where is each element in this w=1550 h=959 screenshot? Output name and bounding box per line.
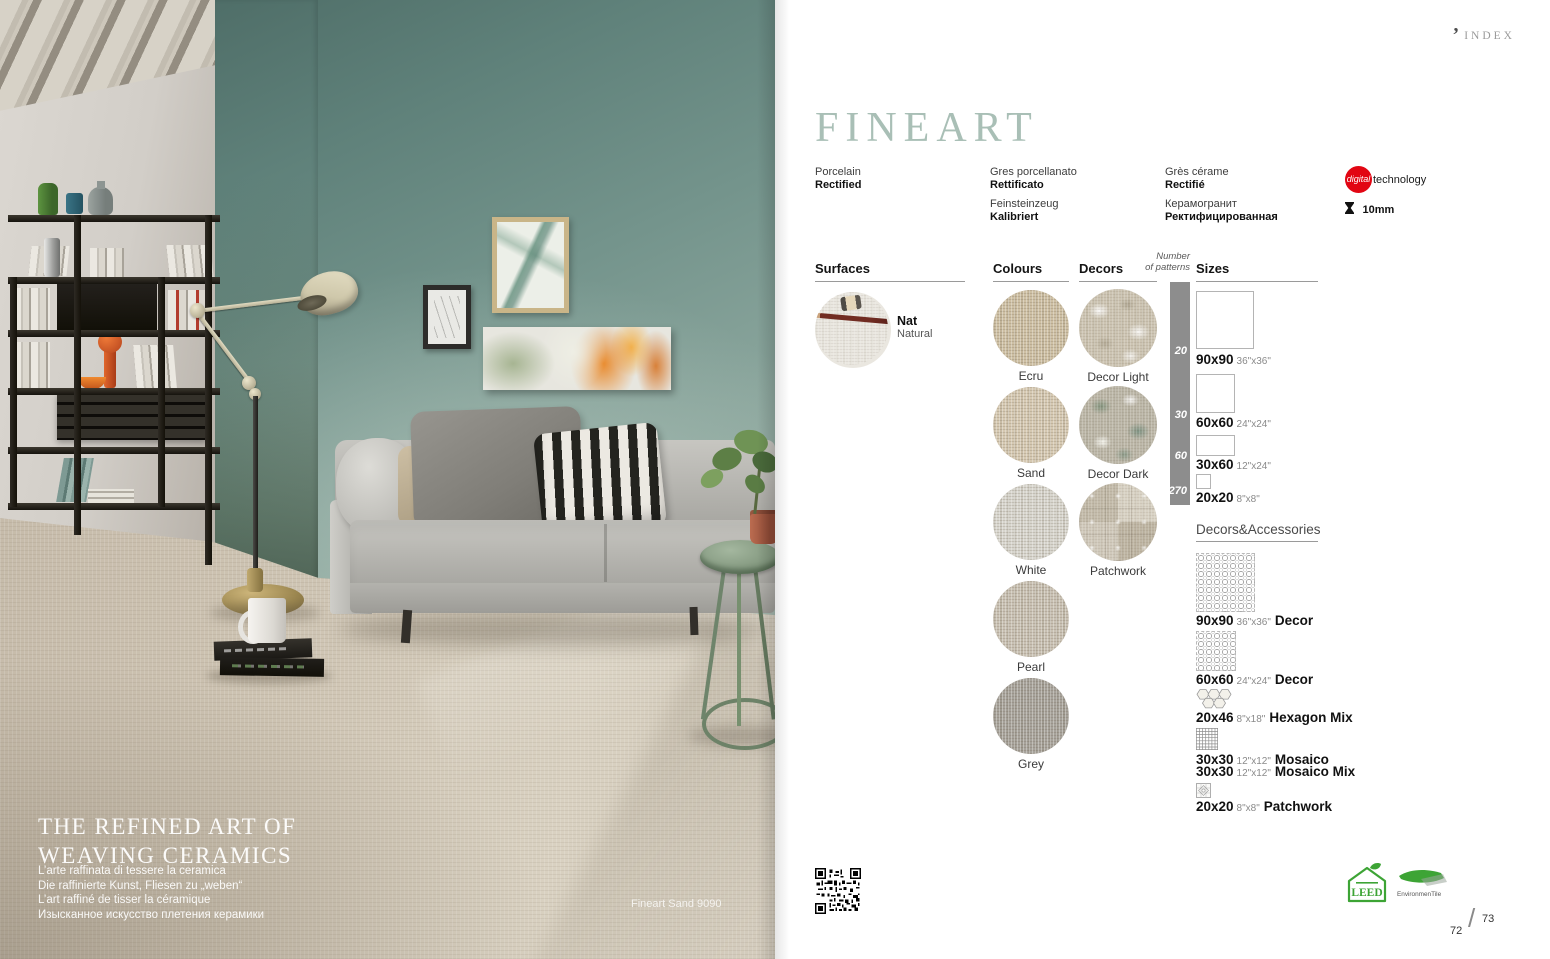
- decors-underline: [1079, 281, 1157, 282]
- weave-texture: [1079, 386, 1157, 464]
- books: [133, 345, 177, 388]
- qr-code: [815, 868, 861, 914]
- patterns-header-line1: Number: [1138, 252, 1190, 263]
- swatch-ecru[interactable]: [993, 290, 1069, 366]
- info-fr-finish: Rectifié: [1165, 179, 1278, 192]
- subtitle-de: Die raffinierte Kunst, Fliesen zu „weben…: [38, 879, 264, 894]
- hexagon-mix-icon: [1196, 689, 1232, 709]
- swatch-white[interactable]: [993, 484, 1069, 560]
- swatch-label: Pearl: [993, 657, 1069, 678]
- pattern-count: 60: [1157, 450, 1187, 462]
- index-comma-icon: ’: [1453, 24, 1460, 46]
- grey-vase-neck: [97, 181, 105, 189]
- size-label: 30x6012"x24": [1196, 457, 1271, 472]
- thread-spool: [840, 295, 862, 312]
- swatch-grey[interactable]: [993, 678, 1069, 754]
- collection-title: FINEART: [815, 104, 1039, 152]
- thickness-icon: [1345, 202, 1354, 214]
- sofa-leg: [690, 607, 699, 635]
- closed-cabinet: [57, 284, 157, 330]
- swatch-label: Decor Light: [1079, 367, 1157, 386]
- accessory-label: 20x208"x8"Patchwork: [1196, 799, 1332, 814]
- photo-headline: THE REFINED ART OF WEAVING CERAMICS: [38, 812, 296, 870]
- painting-canvas: [483, 327, 671, 390]
- decors-column: Decor Light Decor Dark Patchwork: [1079, 289, 1157, 580]
- books: [14, 342, 50, 388]
- shelf-board: [8, 330, 220, 337]
- shelf-board: [8, 503, 220, 510]
- size-square-20x20: [1196, 474, 1211, 489]
- size-label: 90x9036"x36": [1196, 352, 1271, 367]
- weave-texture: [993, 387, 1069, 463]
- weave-texture: [993, 581, 1069, 657]
- digital-badge-suffix: technology: [1373, 174, 1426, 186]
- weave-texture: [993, 484, 1069, 560]
- surfaces-header: Surfaces: [815, 261, 870, 276]
- patterns-header-line2: of patterns: [1138, 263, 1190, 274]
- leed-text: LEED: [1351, 887, 1382, 899]
- page-number-right: 73: [1482, 913, 1494, 925]
- index-link[interactable]: ’INDEX: [1453, 24, 1515, 47]
- headline-line1: THE REFINED ART OF: [38, 812, 296, 841]
- page-number-slash: /: [1468, 903, 1475, 934]
- shelf-rail: [10, 277, 17, 507]
- photo-caption: Fineart Sand 9090: [631, 898, 722, 910]
- photo-gutter-shade: [757, 0, 775, 959]
- swatch-decor-light[interactable]: [1079, 289, 1157, 367]
- swatch-label: Sand: [993, 463, 1069, 484]
- mosaico-grid-icon: [1196, 728, 1218, 750]
- room-photo: THE REFINED ART OF WEAVING CERAMICS L’ar…: [0, 0, 775, 959]
- floor-book: [220, 657, 324, 677]
- subtitle-it: L’arte raffinata di tessere la ceramica: [38, 864, 264, 879]
- size-rect-30x60: [1196, 435, 1235, 456]
- shelf-board: [8, 277, 220, 284]
- page-number-left: 72: [1450, 925, 1462, 937]
- digital-technology-badge: digitaltechnology: [1345, 166, 1426, 193]
- info-it-de: Gres porcellanato Rettificato Feinsteinz…: [990, 166, 1077, 230]
- shelf-board: [8, 388, 220, 395]
- sizes-header: Sizes: [1196, 261, 1229, 276]
- environmentile-logo: EnvironmenTile: [1395, 866, 1451, 902]
- metal-vase: [44, 238, 60, 277]
- size-label: 60x6024"x24": [1196, 415, 1271, 430]
- pattern-count: 270: [1157, 485, 1187, 497]
- info-de-finish: Kalibriert: [990, 211, 1077, 224]
- decors-header: Decors: [1079, 261, 1123, 276]
- info-it-material: Gres porcellanato: [990, 166, 1077, 179]
- shelf-board: [8, 215, 220, 222]
- info-fr-material: Grès cérame: [1165, 166, 1278, 179]
- accessories-underline: [1196, 541, 1318, 542]
- books: [14, 288, 50, 330]
- surface-subname: Natural: [897, 328, 932, 340]
- shelf-rail: [158, 277, 165, 507]
- index-label: INDEX: [1464, 30, 1515, 42]
- grey-vase: [88, 187, 113, 215]
- books: [90, 248, 124, 277]
- colours-underline: [993, 281, 1069, 282]
- book-spine-text: [232, 664, 304, 668]
- shelf-leg: [74, 510, 81, 535]
- painting-small-art: [434, 296, 460, 338]
- surfaces-underline: [815, 281, 965, 282]
- info-ru-finish: Ректифицированная: [1165, 211, 1278, 224]
- sofa-front: [350, 583, 775, 613]
- shelf-rail: [74, 215, 81, 510]
- sofa-seat-crease: [604, 524, 607, 582]
- weave-texture: [993, 678, 1069, 754]
- page-numbers: 72 / 73: [1442, 907, 1512, 945]
- green-vase: [38, 183, 58, 215]
- info-en-finish: Rectified: [815, 179, 861, 192]
- patterns-count-bar: 20 30 60 270: [1170, 282, 1190, 505]
- thickness-value: 10mm: [1362, 204, 1394, 216]
- lamp-pole: [253, 396, 258, 592]
- digital-badge-icon: digital: [1345, 166, 1372, 193]
- info-it-finish: Rettificato: [990, 179, 1077, 192]
- accessory-label: 30x3012"x12"Mosaico Mix: [1196, 764, 1355, 779]
- tech-badges: digitaltechnology 10mm: [1345, 166, 1426, 219]
- swatch-label: Ecru: [993, 366, 1069, 387]
- leed-logo: LEED: [1342, 862, 1392, 906]
- swatch-patchwork[interactable]: [1079, 483, 1157, 561]
- surface-name: Nat: [897, 314, 917, 328]
- accessory-label: 90x9036"x36"Decor: [1196, 613, 1313, 628]
- shelf-board: [8, 447, 220, 454]
- info-en: Porcelain Rectified: [815, 166, 861, 192]
- swatch-label: Patchwork: [1079, 561, 1157, 580]
- info-en-material: Porcelain: [815, 166, 861, 179]
- size-square-60x60: [1196, 374, 1235, 413]
- surface-nat-overlay: [815, 292, 888, 365]
- surface-nat: Nat Natural: [815, 292, 1005, 368]
- colours-column: Ecru Sand White Pearl Grey: [993, 290, 1069, 775]
- book-spine-text: [224, 647, 290, 652]
- photo-subtitles: L’arte raffinata di tessere la ceramica …: [38, 864, 264, 922]
- patchwork-icon: [1196, 783, 1211, 798]
- swatch-label: Decor Dark: [1079, 464, 1157, 483]
- patterns-header: Number of patterns: [1138, 252, 1190, 273]
- mug: [248, 598, 286, 643]
- weave-texture: [1079, 289, 1157, 367]
- pattern-count: 20: [1157, 345, 1187, 357]
- swatch-sand[interactable]: [993, 387, 1069, 463]
- swatch-label: White: [993, 560, 1069, 581]
- swatch-label: Grey: [993, 754, 1069, 775]
- lamp-joint: [190, 303, 205, 318]
- pattern-count: 30: [1157, 409, 1187, 421]
- lamp-base-stem: [247, 568, 263, 592]
- accessories-section: Decors&Accessories 90x9036"x36"Decor 60x…: [1196, 516, 1396, 816]
- subtitle-ru: Изысканное искусство плетения керамики: [38, 908, 264, 923]
- size-square-90x90: [1196, 291, 1254, 349]
- table-leg: [737, 562, 741, 726]
- swatch-decor-dark[interactable]: [1079, 386, 1157, 464]
- accessory-label: 20x468"x18"Hexagon Mix: [1196, 710, 1353, 725]
- accessories-header: Decors&Accessories: [1196, 522, 1321, 537]
- info-ru-material: Керамогранит: [1165, 198, 1278, 211]
- bookshelf: [8, 215, 220, 515]
- teal-cup: [66, 193, 83, 214]
- environmentile-text: EnvironmenTile: [1397, 891, 1442, 898]
- size-label: 20x208"x8": [1196, 490, 1260, 505]
- decor-tile-60x60: [1196, 631, 1236, 671]
- painting-tall-art: [497, 222, 564, 308]
- info-de-material: Feinsteinzeug: [990, 198, 1077, 211]
- painting-tall: [492, 217, 569, 313]
- subtitle-fr: L’art raffiné de tisser la céramique: [38, 893, 264, 908]
- shelf-leg: [205, 215, 212, 565]
- colours-header: Colours: [993, 261, 1042, 276]
- books-flat: [88, 489, 134, 503]
- weave-texture: [993, 290, 1069, 366]
- catalog-spread: THE REFINED ART OF WEAVING CERAMICS L’ar…: [0, 0, 1550, 959]
- info-fr-ru: Grès cérame Rectifié Керамогранит Ректиф…: [1165, 166, 1278, 230]
- sizes-column: 90x9036"x36" 60x6024"x24" 30x6012"x24" 2…: [1196, 282, 1356, 512]
- painting-small: [423, 285, 471, 349]
- accessory-label: 60x6024"x24"Decor: [1196, 672, 1313, 687]
- thickness-row: 10mm: [1345, 201, 1426, 219]
- swatch-pearl[interactable]: [993, 581, 1069, 657]
- weave-texture: [1079, 483, 1157, 561]
- decor-tile-90x90: [1196, 553, 1255, 612]
- product-page: ’INDEX FINEART Porcelain Rectified Gres …: [775, 0, 1550, 959]
